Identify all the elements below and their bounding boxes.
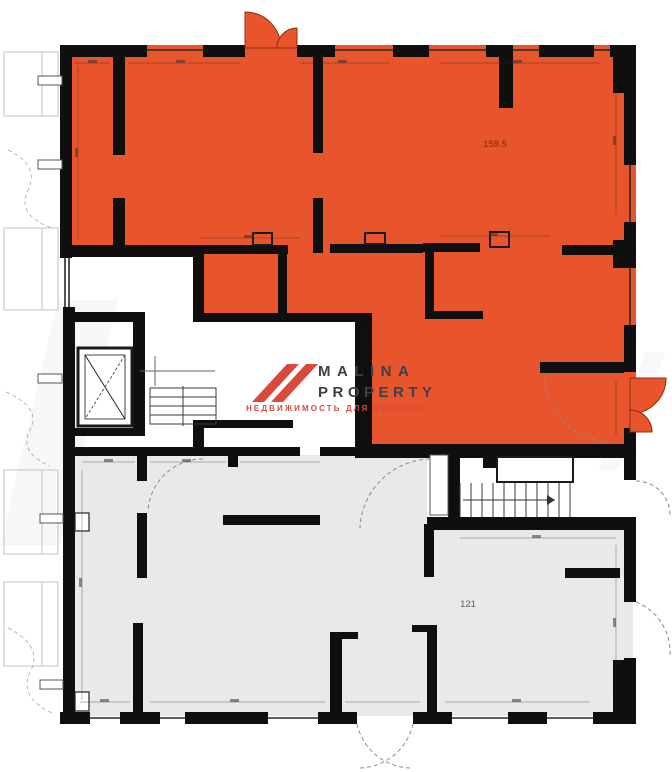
logo-line2: PROPERTY (318, 384, 437, 401)
floor-plan-drawing: 159.5 121 MALINA PROPERTY НЕДВИЖИМОСТЬ Д… (0, 0, 672, 772)
stair-exit-door (636, 481, 670, 515)
logo-mark-icon (252, 364, 318, 402)
unit-bottom-entry-door (360, 724, 413, 768)
unit-bottom-side-door (636, 602, 670, 656)
logo-tagline: НЕДВИЖИМОСТЬ ДЛЯ БИЗНЕСА (246, 404, 427, 413)
logo-line1: MALINA (318, 363, 415, 380)
elevator (78, 348, 132, 426)
axis-marker (140, 356, 215, 386)
agency-logo: MALINA PROPERTY НЕДВИЖИМОСТЬ ДЛЯ БИЗНЕСА (246, 363, 437, 413)
unit-top-area-label: 159.5 (483, 139, 507, 150)
unit-bottom-entry-door (357, 724, 410, 768)
floor-plan-page: 159.5 121 MALINA PROPERTY НЕДВИЖИМОСТЬ Д… (0, 0, 672, 772)
entrance-door-top[interactable] (245, 12, 297, 48)
unit-bottom-area-label: 121 (460, 599, 476, 610)
entrance-door-right[interactable] (630, 378, 666, 432)
unit-bottom-area[interactable] (70, 455, 633, 716)
